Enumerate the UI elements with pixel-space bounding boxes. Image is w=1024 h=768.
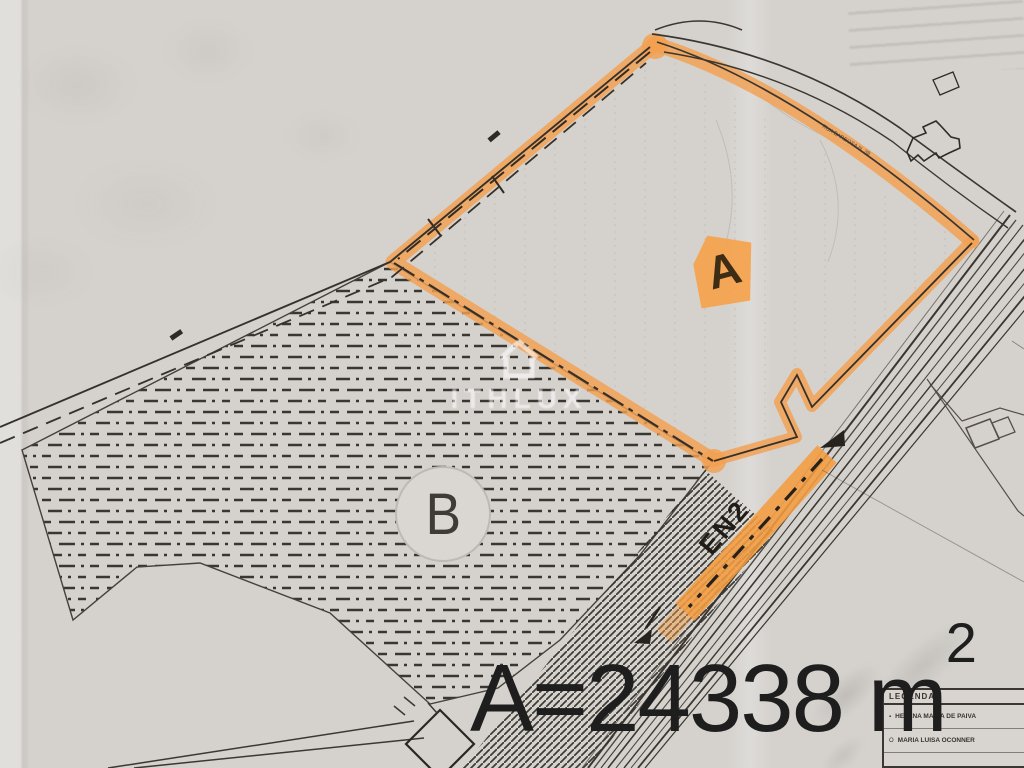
area-annotation-text: A=24338 m (470, 645, 946, 752)
building-outlines-top (907, 72, 960, 161)
parcel-b-label-circle: B (395, 466, 491, 562)
area-annotation-exponent: 2 (946, 611, 977, 674)
bottom-structures (108, 697, 474, 768)
watermark: ITHLUX (444, 336, 594, 415)
watermark-brand: ITHLUX (444, 383, 594, 415)
area-annotation: A=24338 m2 (470, 646, 977, 752)
parcel-b-label: B (425, 481, 461, 548)
parcel-a-label: A (701, 240, 747, 301)
house-icon (496, 336, 542, 380)
east-parcel-lines (822, 341, 1024, 582)
scanned-site-plan: ITHLUX A B EN2 RUA BARBOSA N. 38 LEGENDA… (0, 0, 1024, 768)
